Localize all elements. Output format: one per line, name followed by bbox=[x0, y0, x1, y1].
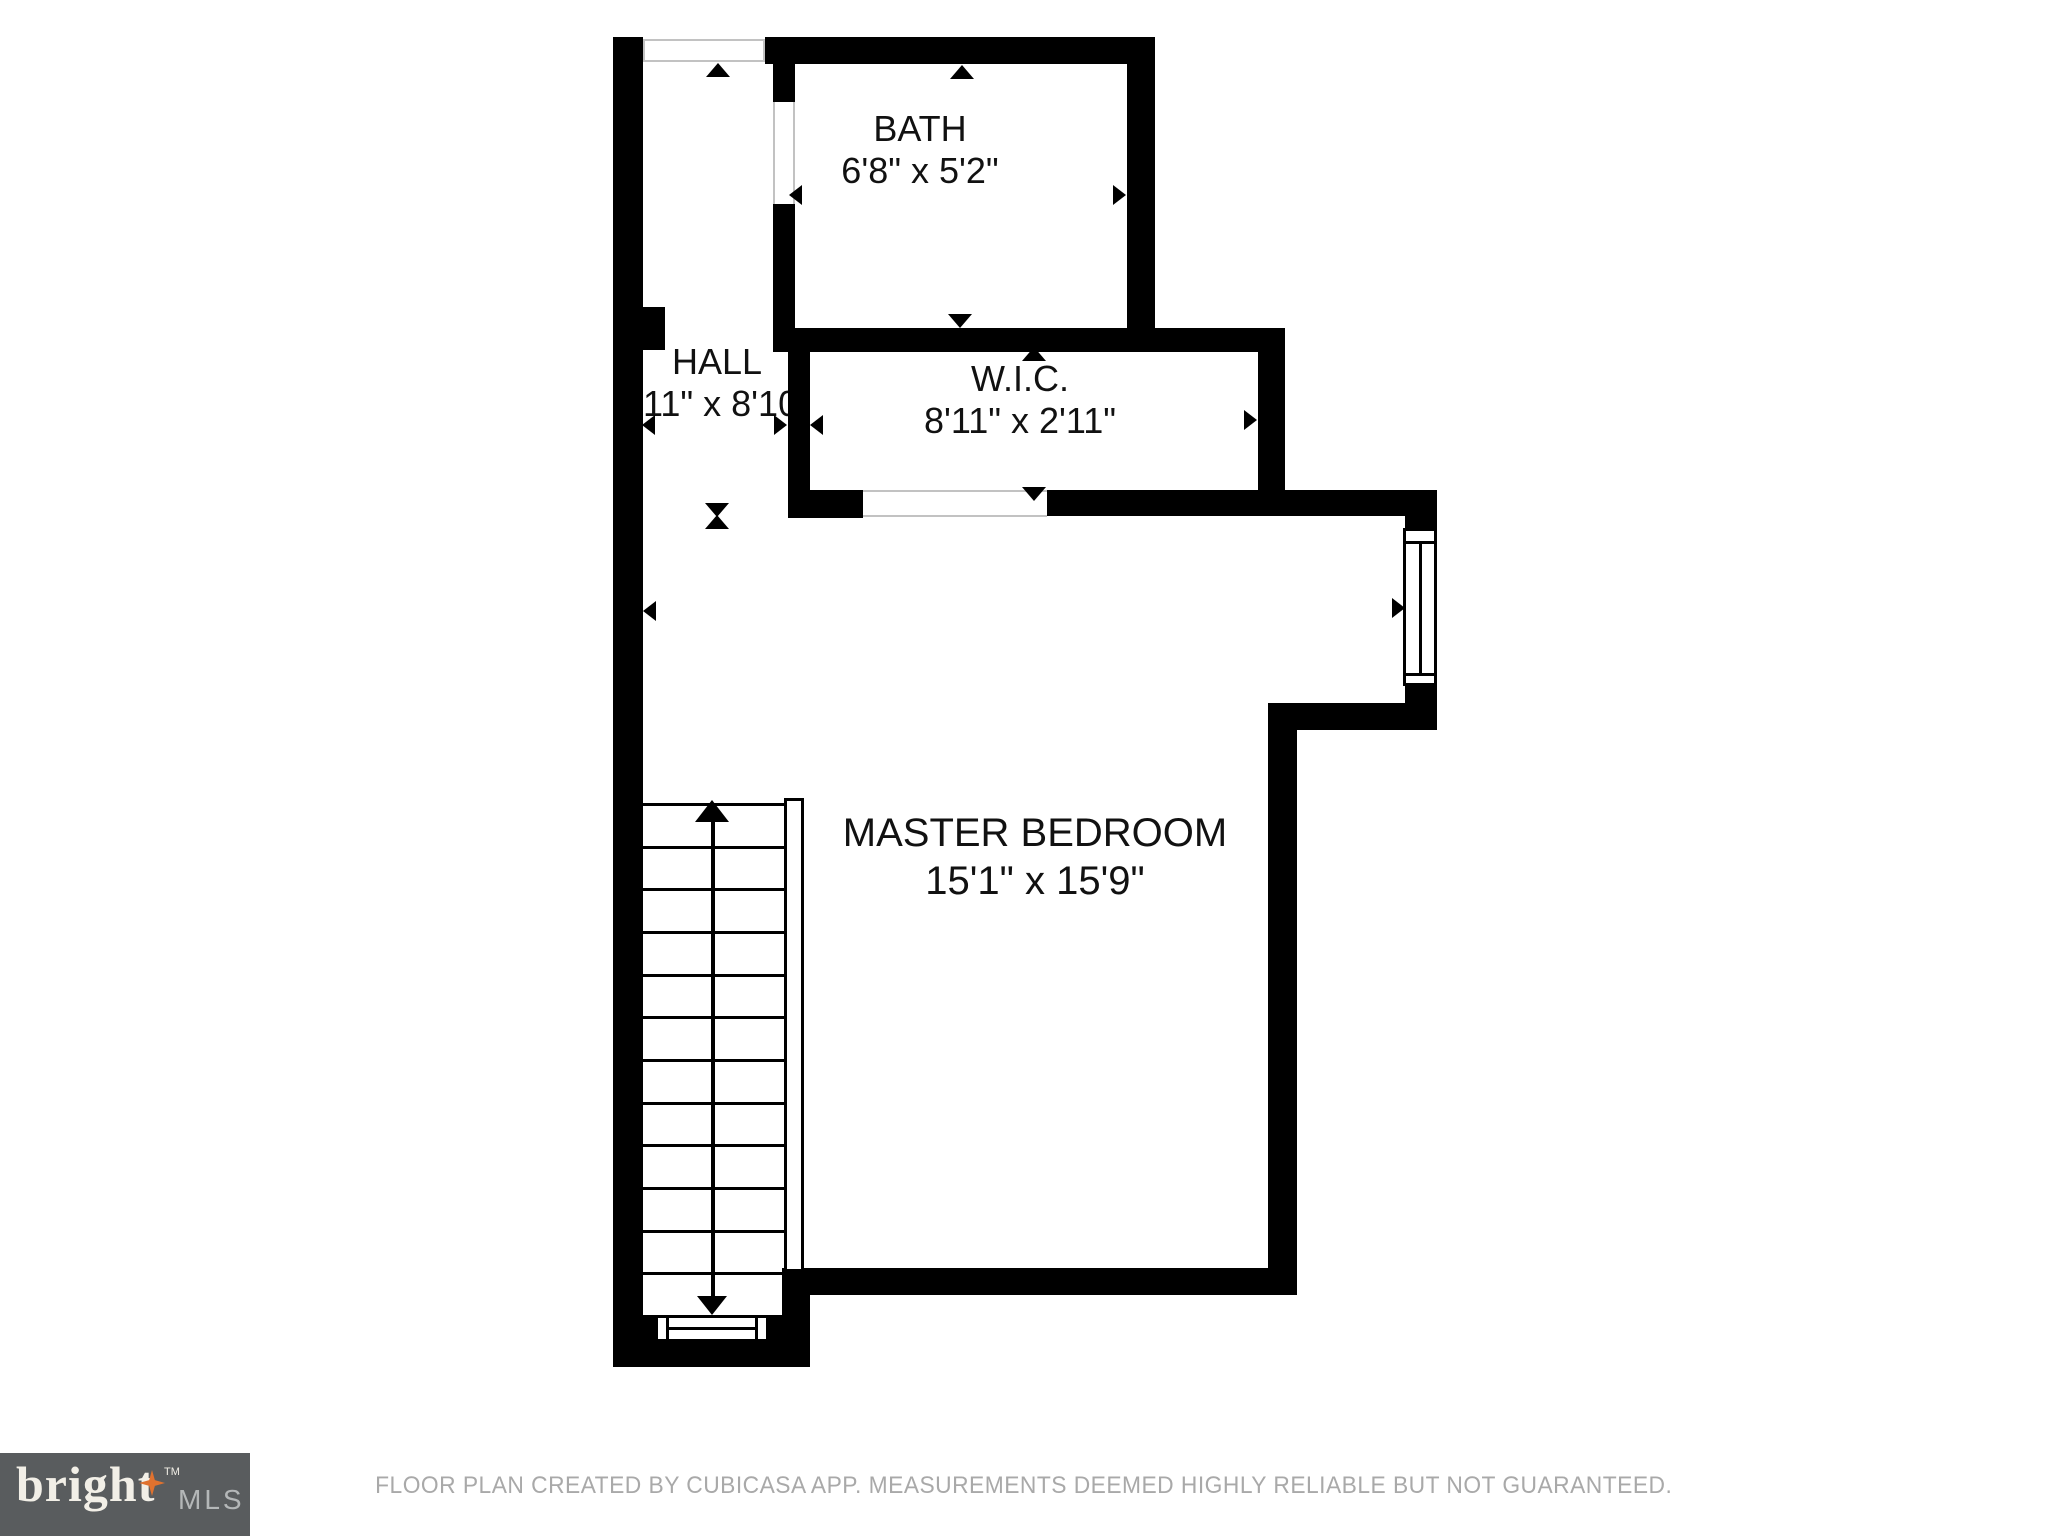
wall-bottom-window-stub-right bbox=[767, 1315, 782, 1342]
up-arrow-icon bbox=[705, 515, 729, 529]
left-arrow-icon bbox=[789, 185, 802, 205]
footer-disclaimer-text: FLOOR PLAN CREATED BY CUBICASA APP. MEAS… bbox=[375, 1472, 1672, 1500]
right-arrow-icon bbox=[1244, 410, 1257, 430]
floorplan-canvas: BATH 6'8" x 5'2" HALL 11" x 8'10" W.I.C.… bbox=[0, 0, 2048, 1536]
right-arrow-icon bbox=[1113, 185, 1126, 205]
stair-railing bbox=[784, 798, 804, 1272]
room-name: HALL bbox=[672, 341, 762, 383]
room-label-master-bedroom: MASTER BEDROOM 15'1" x 15'9" bbox=[843, 809, 1227, 905]
brightmls-logo: bright TM MLS bbox=[0, 1453, 250, 1536]
wall-left-notch bbox=[641, 307, 665, 350]
room-dims: 8'11" x 2'11" bbox=[924, 400, 1116, 442]
opening-hall-top bbox=[643, 39, 765, 62]
room-name: MASTER BEDROOM bbox=[843, 809, 1227, 857]
window-bottom-left bbox=[655, 1315, 769, 1342]
room-dims: 15'1" x 15'9" bbox=[843, 857, 1227, 905]
wall-bath-right bbox=[1127, 37, 1155, 352]
wall-wic-bottom-left bbox=[788, 490, 863, 518]
room-name: BATH bbox=[841, 108, 998, 150]
room-dims: 6'8" x 5'2" bbox=[841, 150, 998, 192]
down-arrow-icon bbox=[697, 1296, 727, 1315]
wall-left-outer bbox=[613, 37, 643, 1367]
left-arrow-icon bbox=[642, 415, 655, 435]
logo-mls-text: MLS bbox=[178, 1484, 245, 1516]
right-arrow-icon bbox=[774, 415, 787, 435]
wall-bath-top bbox=[765, 37, 1155, 64]
wall-master-right bbox=[1268, 703, 1297, 1295]
up-arrow-icon bbox=[706, 63, 730, 77]
logo-trademark: TM bbox=[164, 1466, 180, 1478]
wall-stair-bottom bbox=[613, 1340, 810, 1367]
down-arrow-icon bbox=[948, 314, 972, 328]
opening-wic-door bbox=[863, 490, 1047, 517]
footer-disclaimer: FLOOR PLAN CREATED BY CUBICASA APP. MEAS… bbox=[0, 1472, 2048, 1500]
stair-direction-arrow bbox=[711, 816, 715, 1302]
down-arrow-icon bbox=[1022, 487, 1046, 501]
right-arrow-icon bbox=[1392, 598, 1405, 618]
room-name: W.I.C. bbox=[924, 358, 1116, 400]
window-right-bay bbox=[1403, 528, 1437, 686]
left-arrow-icon bbox=[810, 415, 823, 435]
room-label-wic: W.I.C. 8'11" x 2'11" bbox=[924, 358, 1116, 442]
wall-wic-bottom-right bbox=[1047, 490, 1437, 516]
up-arrow-icon bbox=[695, 800, 729, 822]
up-arrow-icon bbox=[1022, 347, 1046, 361]
left-arrow-icon bbox=[643, 601, 656, 621]
wall-master-bottom bbox=[782, 1268, 1297, 1295]
wall-bath-left-upper bbox=[773, 60, 795, 102]
room-label-bath: BATH 6'8" x 5'2" bbox=[841, 108, 998, 192]
room-label-hall-name: HALL bbox=[672, 341, 762, 383]
logo-brand-text: bright bbox=[16, 1455, 155, 1513]
up-arrow-icon bbox=[950, 65, 974, 79]
